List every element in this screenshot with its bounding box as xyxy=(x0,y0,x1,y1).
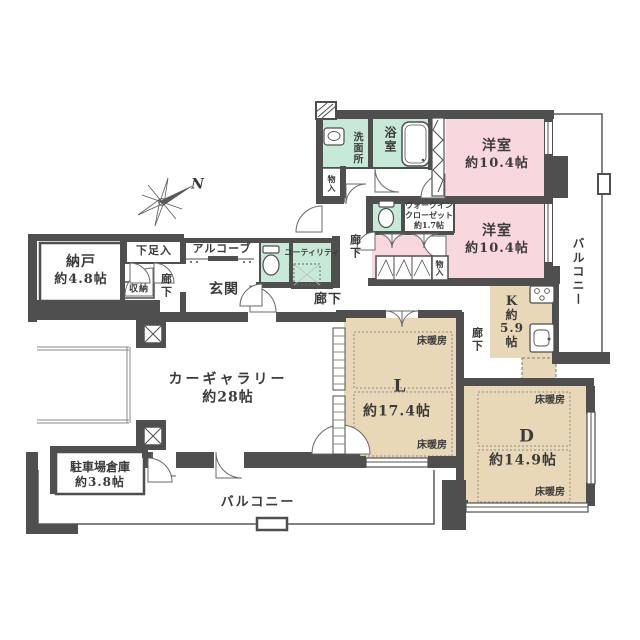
floorplan-drawing xyxy=(0,0,640,640)
glass-partition xyxy=(333,328,345,454)
hallway-label-4: 廊下 xyxy=(472,327,483,353)
storage-label-2: 物入 xyxy=(436,260,444,276)
car-gallery-area: 約28帖 xyxy=(169,389,288,407)
room-label-garage-storage: 駐車場倉庫 約3.8帖 xyxy=(70,460,130,490)
hallway-label-1: 廊下 xyxy=(161,273,172,299)
kitchen-sink-icon xyxy=(530,324,554,352)
garage-storage-area: 約3.8帖 xyxy=(70,475,130,490)
room-label-kitchen: K 約 5.9 帖 xyxy=(500,295,524,349)
room-label-shoe-cabinet: 下足入 xyxy=(136,244,172,258)
storage-label-1: 物入 xyxy=(328,175,336,193)
toilet-icon-2 xyxy=(379,201,395,228)
room-label-walk-in-closet: ウォークイン クローゼット 約1.7帖 xyxy=(405,200,453,230)
floor-heating-label-3: 床暖房 xyxy=(535,395,565,408)
entrance-door xyxy=(186,256,254,263)
room-label-washroom: 洗面所 xyxy=(351,132,361,165)
bedroom-top-name: 洋室 xyxy=(465,138,529,156)
living-name: L xyxy=(394,376,407,397)
bedroom-bottom-area: 約10.4帖 xyxy=(465,241,529,257)
floor-heating-label-1: 床暖房 xyxy=(417,336,447,349)
hallway-label-3: 廊下 xyxy=(314,292,342,308)
room-label-alcove: アルコーブ xyxy=(192,242,251,256)
room-label-bedroom-top: 洋室 約10.4帖 xyxy=(465,138,529,172)
room-label-closet: 収納 xyxy=(129,284,149,295)
garage-storage-name: 駐車場倉庫 xyxy=(70,460,130,475)
floor-heating-label-4: 床暖房 xyxy=(535,487,565,500)
balcony-label-right: バルコニー xyxy=(572,237,584,307)
wic-line1: ウォークイン xyxy=(405,200,453,210)
bathtub-icon xyxy=(402,122,429,166)
balcony-label-bottom: バルコニー xyxy=(221,495,296,511)
washbasin-icon xyxy=(324,128,344,145)
room-label-car-gallery: カーギャラリー 約28帖 xyxy=(169,372,288,407)
bedroom-bottom-name: 洋室 xyxy=(465,223,529,241)
room-label-bedroom-bottom: 洋室 約10.4帖 xyxy=(465,223,529,257)
room-label-storeroom: 納戸 約4.8帖 xyxy=(54,254,108,288)
living-area: 約17.4帖 xyxy=(363,403,431,421)
floor-heating-label-2: 床暖房 xyxy=(417,440,447,453)
compass-icon xyxy=(138,178,192,226)
compass-north-label: N xyxy=(191,176,205,194)
bedroom-top-area: 約10.4帖 xyxy=(465,156,529,172)
dining-area: 約14.9帖 xyxy=(489,452,557,470)
hatched-pillar xyxy=(316,102,336,119)
room-label-utility: ユーティリティ xyxy=(284,247,339,257)
storeroom-name: 納戸 xyxy=(54,254,108,272)
floor-plan: N 納戸 約4.8帖 下足入 収納 廊下 アルコーブ 玄関 ユーティリティ 廊下… xyxy=(0,0,640,640)
garage-shutter-lines xyxy=(37,347,130,423)
dining-name: D xyxy=(519,426,535,447)
hallway-label-2: 廊下 xyxy=(350,234,361,260)
room-label-bathroom: 浴室 xyxy=(384,126,396,154)
car-gallery-name: カーギャラリー xyxy=(169,372,288,390)
kitchen-value: 5.9 xyxy=(500,323,524,336)
stove-icon xyxy=(530,286,554,303)
room-label-entrance: 玄関 xyxy=(209,281,239,299)
toilet-icon xyxy=(263,246,279,275)
wic-line2: クローゼット xyxy=(405,210,453,220)
kitchen-unit: 帖 xyxy=(505,336,518,349)
storeroom-area: 約4.8帖 xyxy=(54,272,108,288)
wic-area: 約1.7帖 xyxy=(405,220,453,230)
duct-boxes xyxy=(144,325,162,445)
